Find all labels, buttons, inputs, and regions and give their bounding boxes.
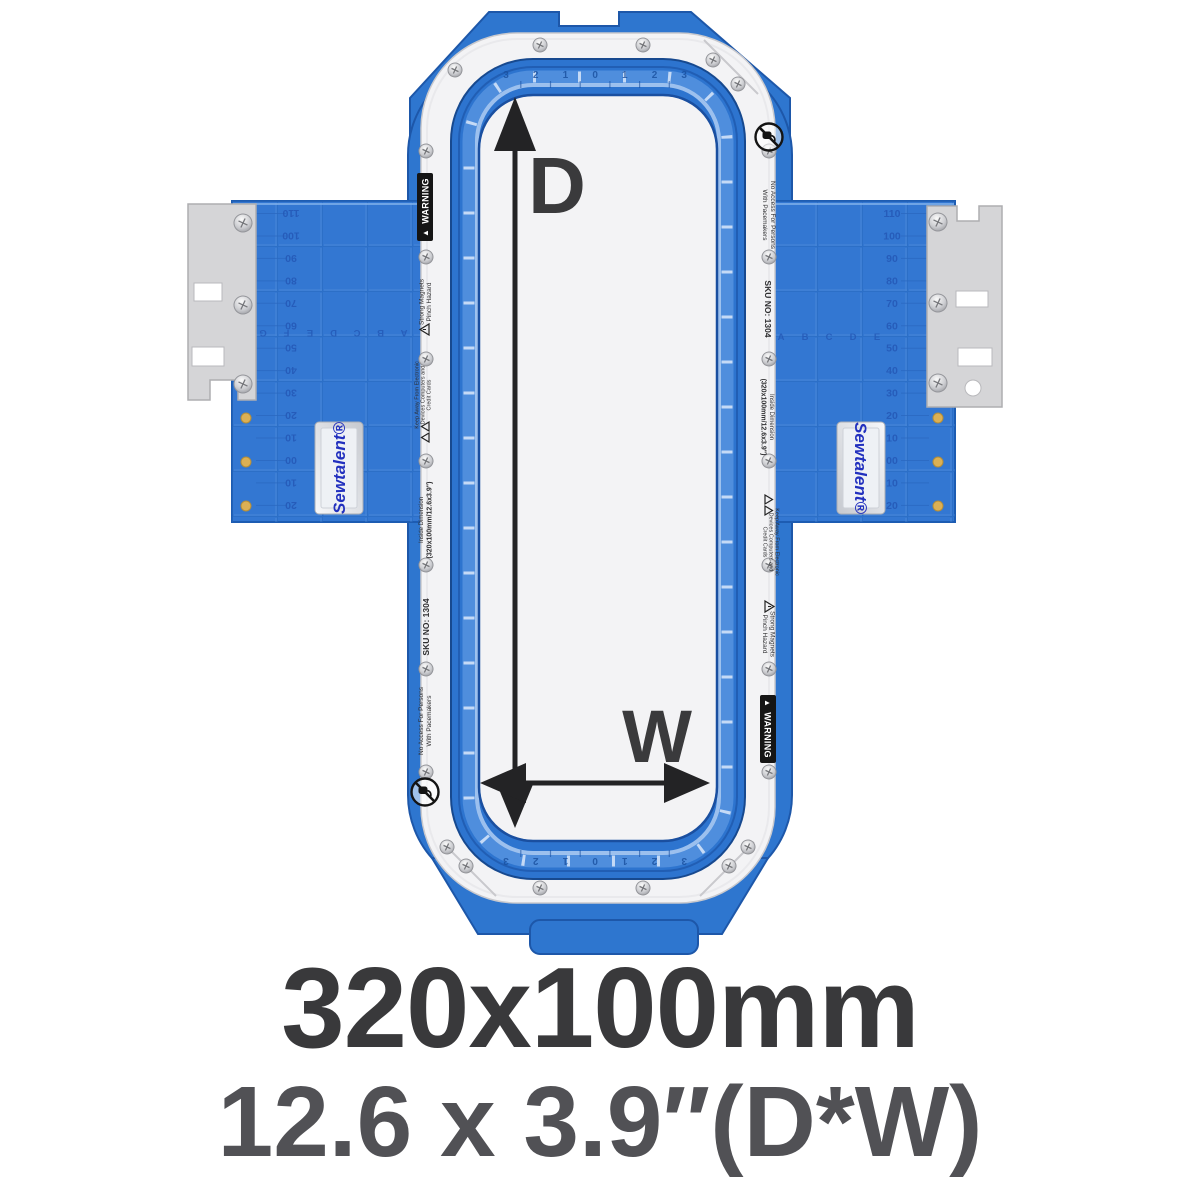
ruler-letter: D [330,327,337,338]
ruler-number: 100 [282,229,300,241]
ruler-number: 110 [884,208,901,220]
ruler-number: 100 [883,230,901,242]
hoop-ruler-number: 1 [562,855,568,866]
warning-badge: ▲ WARNING [417,173,433,241]
size-inch: 12.6 x 3.9″(D*W) [0,1069,1200,1175]
gold-pin-icon [241,457,251,467]
sku-label: SKU NO: 1304 [421,598,431,655]
ruler-number: 00 [285,454,297,466]
ruler-number: 00 [886,455,898,467]
label-line: Inside Dimension [419,497,425,543]
ruler-number: 50 [886,343,898,355]
ruler-number: 10 [285,476,297,488]
hoop-ruler-number: 2 [532,855,538,866]
ruler-number: 40 [285,364,297,376]
ruler-number: 30 [285,387,297,399]
size-mm: 320x100mm [0,950,1200,1069]
hoop-ruler-number: 1 [563,70,569,81]
ruler-number: 20 [886,500,898,512]
label-line: No Access For Persons [769,181,776,250]
label-line: With Pacemakers [426,695,433,747]
hoop-ruler-number: 1 [622,70,628,81]
label-line: (320x100mm/12.6x3.9") [427,482,434,559]
warning-text: WARNING [763,712,773,758]
gold-pin-icon [933,457,943,467]
ruler-letter: F [283,327,289,338]
gold-pin-icon [241,413,251,423]
warning-text: WARNING [421,178,431,224]
sku-text: SKU NO: 1304 [763,280,773,337]
ruler-letter: A [778,332,785,343]
right-bracket-hole [965,380,981,396]
label-line: Credit Cards [427,379,433,410]
left-bracket-slot [192,347,224,366]
label-line: With Pacemakers [761,190,768,242]
ruler-number: 80 [886,275,898,287]
sku-label: SKU NO: 1304 [763,280,773,337]
label-line: Strong Magnets [419,278,426,325]
left-bracket-slot [194,283,222,301]
right-bracket-slot [958,348,992,366]
hoop-ruler-number: 3 [681,70,687,81]
right-bracket-slot [956,291,988,307]
label-line: No Access For Persons [418,686,425,755]
ruler-number: 10 [886,433,898,445]
sku-text: SKU NO: 1304 [421,598,431,655]
sewtalent-logo-left: Sewtalent® [315,422,363,514]
ruler-number: 20 [886,410,898,422]
ruler-number: 80 [285,274,297,286]
hoop-ruler-number: 2 [533,70,539,81]
label-line: (320x100mm/12.6x3.9") [760,379,767,456]
ruler-number: 20 [285,409,297,421]
ruler-number: 10 [285,432,297,444]
hoop-ruler-number: 2 [651,855,657,866]
ruler-number: 30 [886,388,898,400]
product-page: 110100908070605040302010001020 GFEDCBA S… [0,0,1200,1200]
hoop-ruler-number: 2 [652,70,658,81]
label-line: Credit Cards [762,527,768,558]
gold-pin-icon [933,413,943,423]
gold-pin-icon [933,501,943,511]
ruler-number: 60 [886,320,898,332]
pacemaker-warning-icon [756,124,783,151]
warning-triangle-icon: ▲ [421,229,430,237]
gold-pin-icon [241,501,251,511]
ruler-number: 20 [285,499,297,511]
dimension-label-w: W [622,695,692,778]
ruler-letter: D [850,332,857,343]
ruler-letter: B [377,327,384,338]
brand-text: Sewtalent® [330,422,349,514]
label-line: Inside Dimension [768,394,774,440]
hoop-ruler-number: 0 [592,70,598,81]
label-line: Strong Magnets [769,611,776,658]
hoop-ruler-number: 3 [681,855,687,866]
warning-badge: ▲ WARNING [760,695,776,763]
sewtalent-logo-right: Sewtalent® [837,422,885,514]
ruler-letter: C [353,327,360,338]
ruler-number: 50 [285,342,297,354]
ruler-letter: E [307,327,313,338]
hoop-ruler-number: 0 [592,855,598,866]
size-caption: 320x100mm 12.6 x 3.9″(D*W) [0,950,1200,1175]
ruler-letter: A [400,327,407,338]
ruler-number: 110 [282,207,299,219]
brand-text: Sewtalent® [851,422,870,514]
no-access-label: No Access For Persons With Pacemakers [418,686,433,755]
label-line: Pinch Hazard [426,282,433,321]
label-line: Pinch Hazard [761,614,768,653]
hoop-ruler-number: 1 [622,855,628,866]
ruler-number: 10 [886,477,898,489]
ruler-letter: E [874,332,880,343]
left-wing: 110100908070605040302010001020 GFEDCBA S… [232,201,430,522]
no-access-label: No Access For Persons With Pacemakers [761,181,776,250]
ruler-letter: G [259,327,266,338]
pacemaker-warning-icon [412,779,439,806]
ruler-number: 40 [886,365,898,377]
ruler-number: 70 [886,298,898,310]
dimension-label-d: D [528,141,586,230]
ruler-number: 70 [285,297,297,309]
ruler-number: 90 [886,253,898,265]
hoop-ruler-number: 3 [503,70,509,81]
hoop-ruler-number: 3 [503,855,509,866]
warning-triangle-icon: ▲ [763,699,772,707]
ruler-letter: C [826,332,833,343]
ruler-number: 90 [285,252,297,264]
ruler-letter: B [802,332,809,343]
